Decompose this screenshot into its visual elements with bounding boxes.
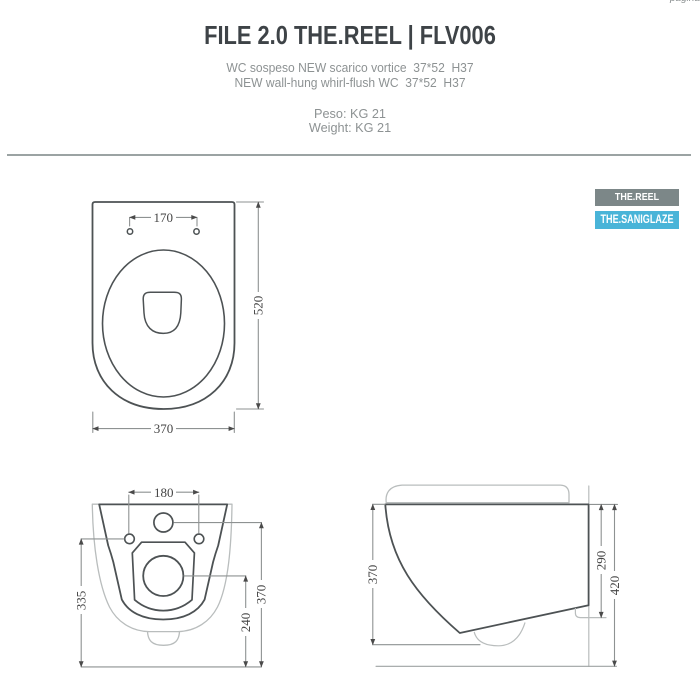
svg-text:240: 240 <box>238 613 253 633</box>
svg-text:370: 370 <box>365 565 380 585</box>
svg-text:420: 420 <box>607 576 622 596</box>
svg-text:520: 520 <box>251 296 266 316</box>
svg-text:370: 370 <box>154 421 174 436</box>
svg-text:290: 290 <box>594 551 609 571</box>
svg-text:370: 370 <box>254 585 269 605</box>
svg-text:180: 180 <box>154 485 174 500</box>
svg-text:170: 170 <box>154 210 174 225</box>
svg-text:335: 335 <box>74 591 89 611</box>
